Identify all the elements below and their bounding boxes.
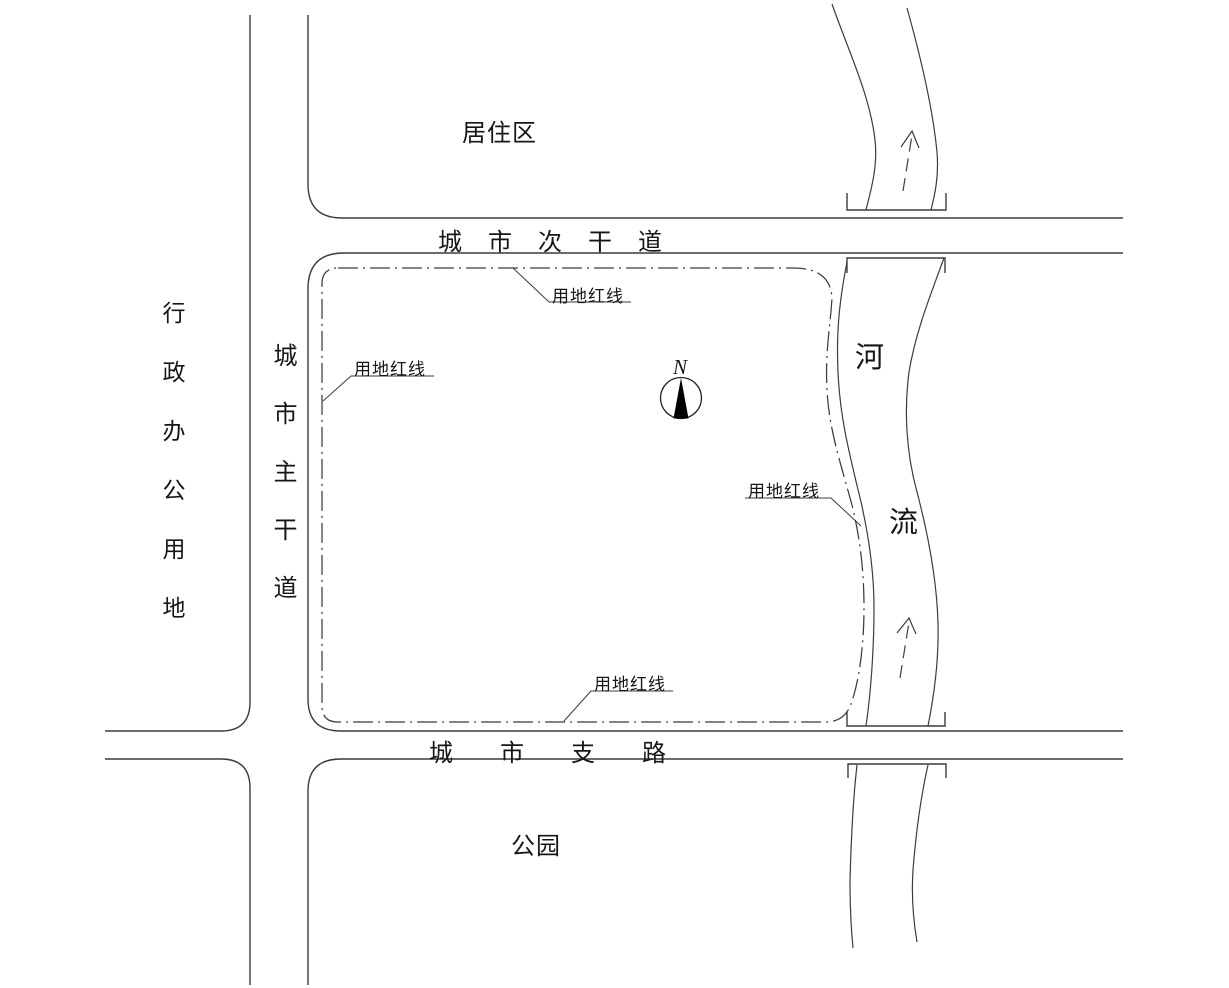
area-label-park: 公园: [511, 826, 561, 861]
river-banks: [832, 4, 944, 948]
site-plan-canvas: 行政办公用地 城市主干道 居住区 城市次干道 城市支路 公园 河 流 用地红线 …: [0, 0, 1229, 988]
north-arrow-icon: [661, 378, 702, 419]
redline-label-left: 用地红线: [354, 355, 426, 380]
road-lines: [105, 15, 1123, 985]
river-label-bottom: 流: [889, 499, 918, 541]
site-block-road-edge: [308, 253, 1123, 731]
road-label-main: 城市主干道: [265, 343, 300, 633]
flow-arrow-icon: [901, 131, 919, 191]
redline-label-top: 用地红线: [552, 282, 624, 307]
redline-label-right: 用地红线: [748, 477, 820, 502]
road-label-branch: 城市支路: [429, 733, 713, 768]
flow-arrow-icon: [897, 618, 916, 678]
north-label: N: [673, 355, 687, 380]
river-bank-bottom-right: [912, 765, 928, 942]
leader-bottom: [564, 691, 673, 721]
area-label-residential: 居住区: [462, 113, 537, 148]
river-bank-mid-left: [837, 262, 874, 726]
bracket-secondary-south: [847, 258, 945, 273]
river-bank-top-right: [907, 8, 938, 210]
river-bank-mid-right: [906, 258, 944, 726]
bracket-branch-south: [848, 764, 946, 778]
river-label-top: 河: [855, 334, 884, 376]
flow-arrows: [897, 131, 919, 678]
main-road-left-edge-lower: [105, 759, 250, 985]
secondary-road-top-edge: [308, 15, 1123, 218]
road-label-secondary: 城市次干道: [438, 222, 688, 257]
redline-label-bottom: 用地红线: [594, 670, 666, 695]
bridge-brackets: [847, 193, 946, 778]
branch-road-bottom-edge: [308, 759, 1123, 985]
leader-right: [745, 498, 861, 526]
river-bank-top-left: [832, 4, 876, 210]
area-label-admin-office: 行政办公用地: [155, 301, 189, 655]
river-bank-bottom-left: [850, 765, 857, 948]
